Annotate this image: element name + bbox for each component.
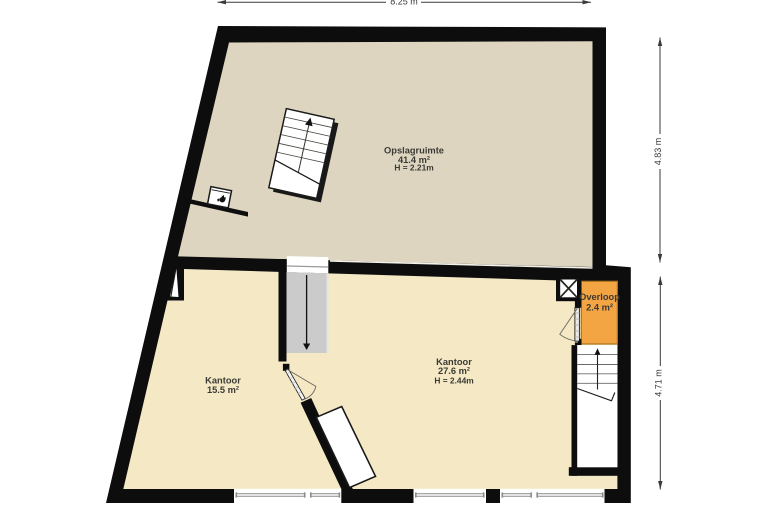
svg-text:4.71 m: 4.71 m bbox=[653, 369, 663, 397]
svg-text:4.83 m: 4.83 m bbox=[653, 138, 663, 166]
svg-text:H = 2.21m: H = 2.21m bbox=[394, 162, 433, 172]
svg-text:H = 2.44m: H = 2.44m bbox=[434, 375, 473, 385]
svg-text:8.25 m: 8.25 m bbox=[390, 0, 418, 7]
svg-text:2.4 m²: 2.4 m² bbox=[586, 302, 613, 312]
svg-text:Overloop: Overloop bbox=[579, 292, 620, 302]
svg-text:15.5 m²: 15.5 m² bbox=[207, 385, 239, 395]
